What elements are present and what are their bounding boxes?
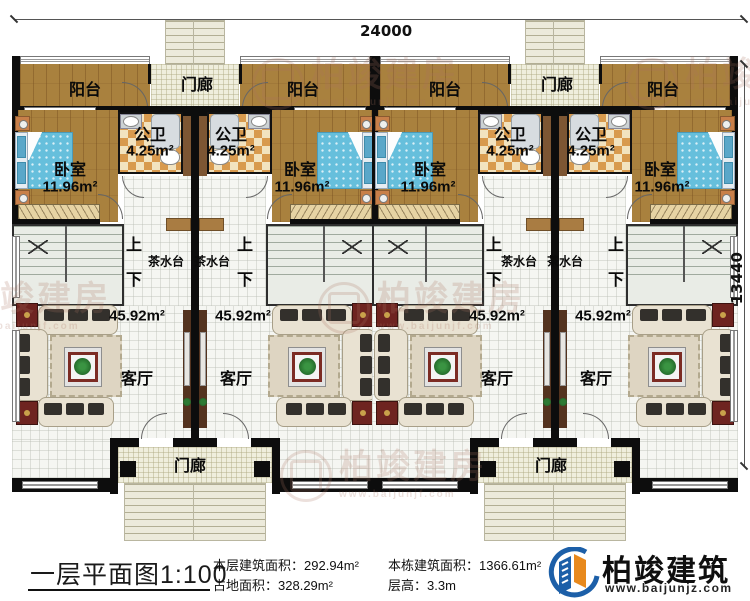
room-label: 4.25m² — [207, 143, 255, 160]
floor-area-stat: 本层建筑面积：292.94m² — [213, 555, 359, 574]
watermark-url: www.baijunjf.com — [311, 97, 428, 108]
land-area-stat: 占地面积：328.29m² — [213, 575, 333, 594]
stat-value: 292.94m² — [304, 558, 359, 573]
stat-label: 层高： — [388, 578, 427, 593]
stat-label: 本层建筑面积： — [213, 558, 304, 573]
watermark: 柏竣建房www.baijunjf.com — [280, 450, 487, 502]
room-label: 公卫 — [575, 121, 607, 145]
right-dimension-label: 13440 — [728, 252, 746, 304]
title-underline — [28, 589, 210, 591]
room-label: 上 — [126, 231, 142, 255]
watermark: 柏竣建房www.baijunjf.com — [626, 58, 750, 110]
room-label: 45.92m² — [109, 308, 165, 325]
watermark: 柏竣建房www.baijunjf.com — [0, 282, 111, 334]
room-label: 茶水台 — [148, 253, 184, 270]
room-label: 门廊 — [174, 452, 206, 476]
room-label: 45.92m² — [215, 308, 271, 325]
room-label: 上 — [237, 231, 253, 255]
room-label: 11.96m² — [42, 179, 97, 196]
room-label: 11.96m² — [400, 179, 455, 196]
watermark: 柏竣建房www.baijunjf.com — [252, 58, 459, 110]
room-label: 卧室 — [284, 156, 316, 180]
room-label: 4.25m² — [486, 143, 534, 160]
room-label: 客厅 — [580, 365, 612, 389]
watermark-logo-icon — [280, 450, 332, 502]
stat-label: 占地面积： — [213, 578, 278, 593]
room-label: 阳台 — [429, 76, 461, 100]
stat-value: 3.3m — [427, 578, 456, 593]
watermark-url: www.baijunjf.com — [0, 321, 80, 332]
room-label: 门廊 — [181, 71, 213, 95]
stat-value: 328.29m² — [278, 578, 333, 593]
stat-value: 1366.61m² — [479, 558, 541, 573]
room-label: 45.92m² — [469, 308, 525, 325]
company-url: www.baijunjz.com — [605, 581, 733, 595]
room-label: 茶水台 — [547, 253, 583, 270]
watermark-url: www.baijunjf.com — [685, 97, 750, 108]
room-label: 门廊 — [541, 71, 573, 95]
stat-label: 本栋建筑面积： — [388, 558, 479, 573]
total-area-stat: 本栋建筑面积：1366.61m² — [388, 555, 541, 574]
room-label: 阳台 — [287, 76, 319, 100]
plan-title: 一层平面图1:100 — [30, 555, 228, 591]
room-label: 4.25m² — [567, 143, 615, 160]
room-label: 下 — [608, 266, 624, 290]
room-label: 卧室 — [54, 156, 86, 180]
room-label: 下 — [237, 266, 253, 290]
title-block: 一层平面图1:100 本层建筑面积：292.94m² 占地面积：328.29m²… — [0, 545, 750, 601]
floor-plan-canvas: 24000 13440 柏竣建房www.baijunjf.com柏竣建房www.… — [0, 0, 750, 601]
living-room-window — [12, 330, 20, 422]
room-label: 公卫 — [494, 121, 526, 145]
room-label: 客厅 — [220, 365, 252, 389]
top-dimension-line — [14, 19, 744, 20]
room-label: 阳台 — [69, 76, 101, 100]
room-label: 4.25m² — [126, 143, 174, 160]
room-label: 卧室 — [644, 156, 676, 180]
room-label: 11.96m² — [634, 179, 689, 196]
floor-height-stat: 层高：3.3m — [388, 575, 456, 594]
room-label: 下 — [486, 266, 502, 290]
watermark-text: 柏竣建房 — [0, 280, 111, 318]
company-logo-icon — [542, 547, 600, 601]
room-label: 上 — [486, 231, 502, 255]
room-label: 茶水台 — [194, 253, 230, 270]
room-label: 公卫 — [134, 121, 166, 145]
living-room-window — [730, 330, 738, 422]
room-label: 公卫 — [215, 121, 247, 145]
room-label: 卧室 — [414, 156, 446, 180]
room-label: 45.92m² — [575, 308, 631, 325]
room-label: 茶水台 — [501, 253, 537, 270]
top-dimension-label: 24000 — [360, 22, 412, 40]
room-label: 阳台 — [647, 76, 679, 100]
room-label: 下 — [126, 266, 142, 290]
room-label: 客厅 — [481, 365, 513, 389]
room-label: 客厅 — [121, 365, 153, 389]
watermark-url: www.baijunjf.com — [339, 489, 456, 500]
room-label: 门廊 — [535, 452, 567, 476]
watermark-logo-icon — [318, 282, 370, 334]
room-label: 11.96m² — [274, 179, 329, 196]
room-label: 上 — [608, 231, 624, 255]
watermark-text: 柏竣建房 — [339, 448, 487, 486]
